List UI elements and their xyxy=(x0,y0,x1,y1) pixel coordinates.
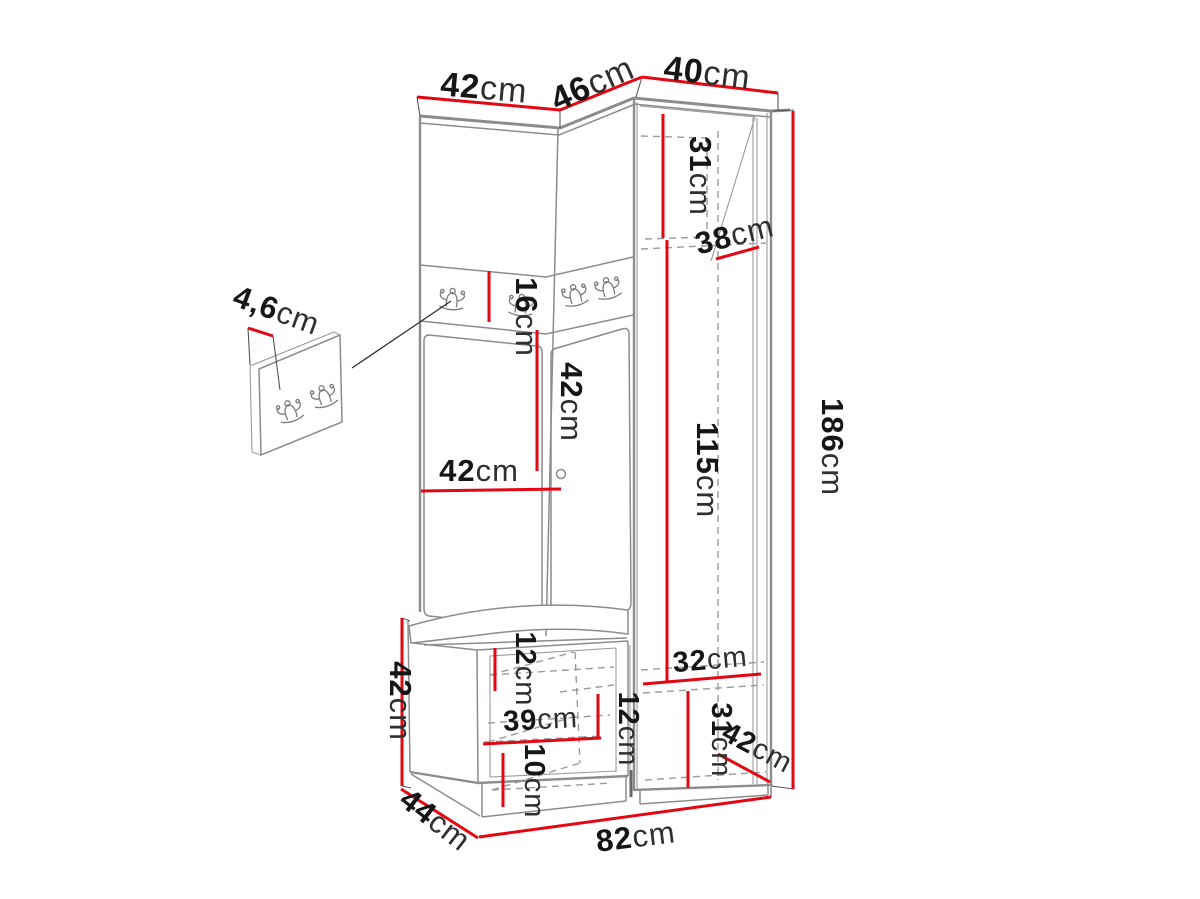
hook-panel-pointer-line xyxy=(352,301,451,368)
dim-hook-rail-height-label: 16cm xyxy=(509,277,544,357)
dim-bench-height-label: 42cm xyxy=(383,661,418,741)
panel-button xyxy=(557,470,566,479)
dim-bench-bottom-inset-label: 10cm xyxy=(518,744,550,819)
dim-top-left-width-label: 42cm xyxy=(439,65,529,110)
furniture-dimension-diagram: 42cm 46cm 40cm 31cm 38cm 16cm 42cm 42cm … xyxy=(0,0,1200,899)
dim-bench-shelf-spacing-label: 12cm xyxy=(612,692,644,767)
dim-top-right-width-label: 40cm xyxy=(662,49,753,97)
dim-back-panel-width-label: 42cm xyxy=(439,453,519,488)
dim-line-back-panel-width xyxy=(421,489,561,491)
dim-lower-inner-width-label: 32cm xyxy=(671,641,748,679)
dim-bench-depth-label: 44cm xyxy=(393,781,477,858)
dim-bench-inner-width-label: 39cm xyxy=(502,702,579,738)
coat-hook-icon xyxy=(561,282,590,309)
dim-back-panel-height-label: 42cm xyxy=(554,362,589,442)
dim-bench-top-inset-label: 12cm xyxy=(509,632,541,707)
dim-line-wall-panel-thickness xyxy=(248,328,273,336)
diagram-svg: 42cm 46cm 40cm 31cm 38cm 16cm 42cm 42cm … xyxy=(0,0,1200,899)
dim-upper-inner-height-label: 31cm xyxy=(683,136,718,216)
coat-hook-icon xyxy=(439,287,465,310)
dim-wall-panel-thickness-label: 4,6cm xyxy=(229,278,325,341)
coat-hook-icon xyxy=(594,275,623,302)
dim-total-height-label: 186cm xyxy=(815,398,850,496)
dim-wardrobe-inner-height-label: 115cm xyxy=(690,422,725,518)
